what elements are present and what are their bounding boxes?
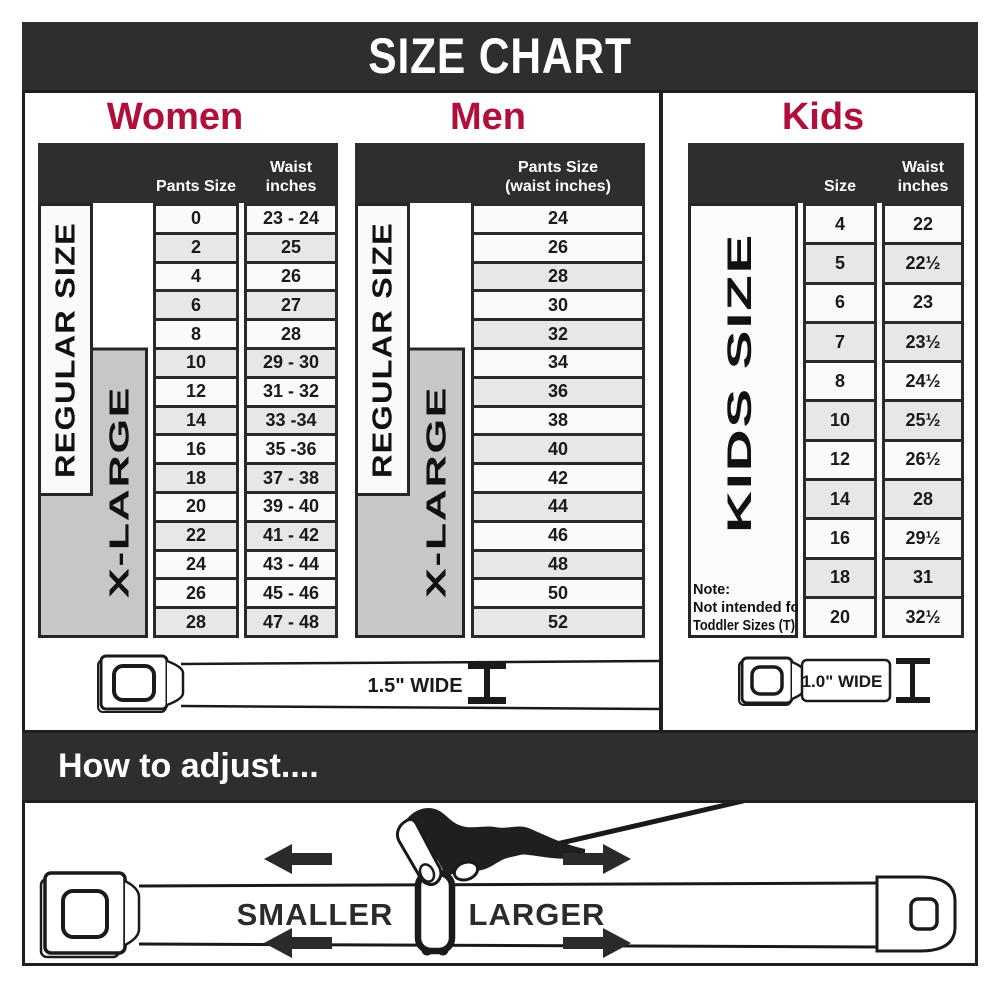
table-cell: 28 — [882, 478, 964, 520]
belt-width-illustration-adult: 1.5" WIDE — [95, 651, 660, 713]
table-cell: 24 — [471, 203, 645, 235]
table-cell: 30 — [471, 289, 645, 321]
table-cell: 29 - 30 — [244, 347, 338, 379]
belt-width-illustration-kids: 1.0" WIDE — [738, 653, 938, 713]
buckle-latch — [125, 881, 139, 945]
table-cell: 42 — [471, 462, 645, 494]
table-cell: 8 — [803, 360, 877, 402]
table-cell: 23 — [882, 282, 964, 324]
table-cell: 26 — [471, 232, 645, 264]
table-cell: 33 -34 — [244, 405, 338, 437]
men-col-pants-size: Pants Size (waist inches) — [471, 159, 645, 196]
kids-note-line2: Not intended for — [693, 600, 798, 616]
panel-divider — [659, 93, 663, 730]
kids-waist-column: 2222½2323½24½25½26½2829½3132½ — [882, 203, 964, 643]
x-large-label: X-LARGE — [421, 386, 452, 598]
size-chart-panels: Women Men Kids Pants Size Waist inches R… — [22, 90, 978, 733]
table-cell: 36 — [471, 376, 645, 408]
table-cell: 39 - 40 — [244, 491, 338, 523]
table-cell: 43 - 44 — [244, 549, 338, 581]
table-cell: 12 — [153, 376, 239, 408]
table-cell: 7 — [803, 321, 877, 363]
table-cell: 31 — [882, 557, 964, 599]
table-cell: 2 — [153, 232, 239, 264]
table-cell: 16 — [153, 433, 239, 465]
table-cell: 22 — [882, 203, 964, 245]
kids-col-waist-inches: Waist inches — [882, 159, 964, 196]
men-table-header: Pants Size (waist inches) — [355, 143, 645, 203]
men-size-table: Pants Size (waist inches) REGULAR SIZE X… — [355, 143, 645, 643]
table-cell: 4 — [803, 203, 877, 245]
men-size-range-graphic: REGULAR SIZE X-LARGE — [355, 203, 465, 638]
page-title: SIZE CHART — [368, 27, 632, 85]
table-cell: 47 - 48 — [244, 606, 338, 638]
kids-table-header: Size Waist inches — [688, 143, 964, 203]
table-cell: 23 - 24 — [244, 203, 338, 235]
table-cell: 38 — [471, 405, 645, 437]
table-cell: 26½ — [882, 439, 964, 481]
table-cell: 44 — [471, 491, 645, 523]
kids-size-range-graphic: KIDS SIZE Note: Not intended for Toddler… — [688, 203, 798, 638]
smaller-label: SMALLER — [237, 897, 394, 932]
men-heading: Men — [343, 96, 633, 140]
table-cell: 14 — [153, 405, 239, 437]
women-table-header: Pants Size Waist inches — [38, 143, 338, 203]
larger-label: LARGER — [469, 897, 606, 932]
belt-strap-top-edge — [139, 883, 881, 886]
table-cell: 40 — [471, 433, 645, 465]
x-large-label: X-LARGE — [104, 386, 135, 598]
table-cell: 18 — [153, 462, 239, 494]
kids-heading: Kids — [685, 96, 961, 140]
belt-tip-slot — [911, 899, 937, 929]
table-cell: 35 -36 — [244, 433, 338, 465]
table-cell: 10 — [153, 347, 239, 379]
table-cell: 52 — [471, 606, 645, 638]
women-col-waist-inches: Waist inches — [244, 159, 338, 196]
men-pants-size-column: 242628303234363840424446485052 — [471, 203, 645, 643]
table-cell: 8 — [153, 318, 239, 350]
table-cell: 27 — [244, 289, 338, 321]
belt-strap-top-edge — [181, 661, 660, 664]
buckle-latch — [167, 661, 183, 705]
arrow-left-icon — [264, 928, 332, 958]
table-cell: 6 — [803, 282, 877, 324]
table-cell: 10 — [803, 399, 877, 441]
table-cell: 20 — [803, 596, 877, 638]
table-cell: 20 — [153, 491, 239, 523]
belt-width-label: 1.0" WIDE — [802, 672, 883, 691]
belt-width-label: 1.5" WIDE — [367, 675, 462, 697]
how-to-adjust-bar: How to adjust.... — [22, 733, 978, 800]
table-cell: 14 — [803, 478, 877, 520]
table-cell: 22 — [153, 520, 239, 552]
buckle-button — [752, 667, 782, 694]
women-pants-size-column: 0246810121416182022242628 — [153, 203, 239, 643]
table-cell: 24½ — [882, 360, 964, 402]
women-heading: Women — [25, 96, 325, 140]
adjust-belt-graphic: SMALLER LARGER — [25, 803, 975, 963]
width-marker-icon — [896, 658, 930, 703]
table-cell: 24 — [153, 549, 239, 581]
kids-size-label: KIDS SIZE — [721, 233, 759, 533]
buckle-button — [114, 666, 154, 700]
table-cell: 16 — [803, 517, 877, 559]
table-cell: 22½ — [882, 242, 964, 284]
women-size-table: Pants Size Waist inches REGULAR SIZE X-L… — [38, 143, 338, 643]
table-cell: 45 - 46 — [244, 577, 338, 609]
table-cell: 32 — [471, 318, 645, 350]
arrow-left-icon — [264, 844, 332, 874]
buckle-button — [63, 891, 107, 937]
table-cell: 4 — [153, 261, 239, 293]
table-cell: 34 — [471, 347, 645, 379]
table-cell: 26 — [244, 261, 338, 293]
kids-note-line1: Note: — [693, 582, 730, 598]
how-to-adjust-heading: How to adjust.... — [58, 747, 319, 786]
table-cell: 28 — [153, 606, 239, 638]
table-cell: 18 — [803, 557, 877, 599]
table-cell: 50 — [471, 577, 645, 609]
regular-size-label: REGULAR SIZE — [50, 222, 81, 478]
how-to-adjust-illustration: SMALLER LARGER — [22, 800, 978, 966]
table-cell: 41 - 42 — [244, 520, 338, 552]
kids-size-table: Size Waist inches KIDS SIZE Note: Not in… — [688, 143, 964, 643]
table-cell: 23½ — [882, 321, 964, 363]
table-cell: 28 — [471, 261, 645, 293]
table-cell: 37 - 38 — [244, 462, 338, 494]
kids-size-column: 45678101214161820 — [803, 203, 877, 643]
table-cell: 26 — [153, 577, 239, 609]
width-marker-icon — [468, 662, 506, 704]
table-cell: 5 — [803, 242, 877, 284]
belt-strap-bottom-edge — [181, 706, 660, 709]
women-size-range-graphic: REGULAR SIZE X-LARGE — [38, 203, 148, 638]
regular-size-label: REGULAR SIZE — [367, 222, 398, 478]
kids-note-line3: Toddler Sizes (T) — [693, 618, 795, 634]
belt-strap-bottom-edge — [139, 944, 881, 947]
table-cell: 46 — [471, 520, 645, 552]
women-col-pants-size: Pants Size — [153, 178, 239, 196]
table-cell: 32½ — [882, 596, 964, 638]
table-cell: 29½ — [882, 517, 964, 559]
arrow-right-icon — [563, 928, 631, 958]
kids-col-size: Size — [803, 178, 877, 196]
table-cell: 0 — [153, 203, 239, 235]
table-cell: 25½ — [882, 399, 964, 441]
table-cell: 6 — [153, 289, 239, 321]
table-cell: 28 — [244, 318, 338, 350]
women-waist-column: 23 - 242526272829 - 3031 - 3233 -3435 -3… — [244, 203, 338, 643]
table-cell: 12 — [803, 439, 877, 481]
table-cell: 25 — [244, 232, 338, 264]
table-cell: 48 — [471, 549, 645, 581]
size-chart-banner: SIZE CHART — [22, 22, 978, 90]
table-cell: 31 - 32 — [244, 376, 338, 408]
